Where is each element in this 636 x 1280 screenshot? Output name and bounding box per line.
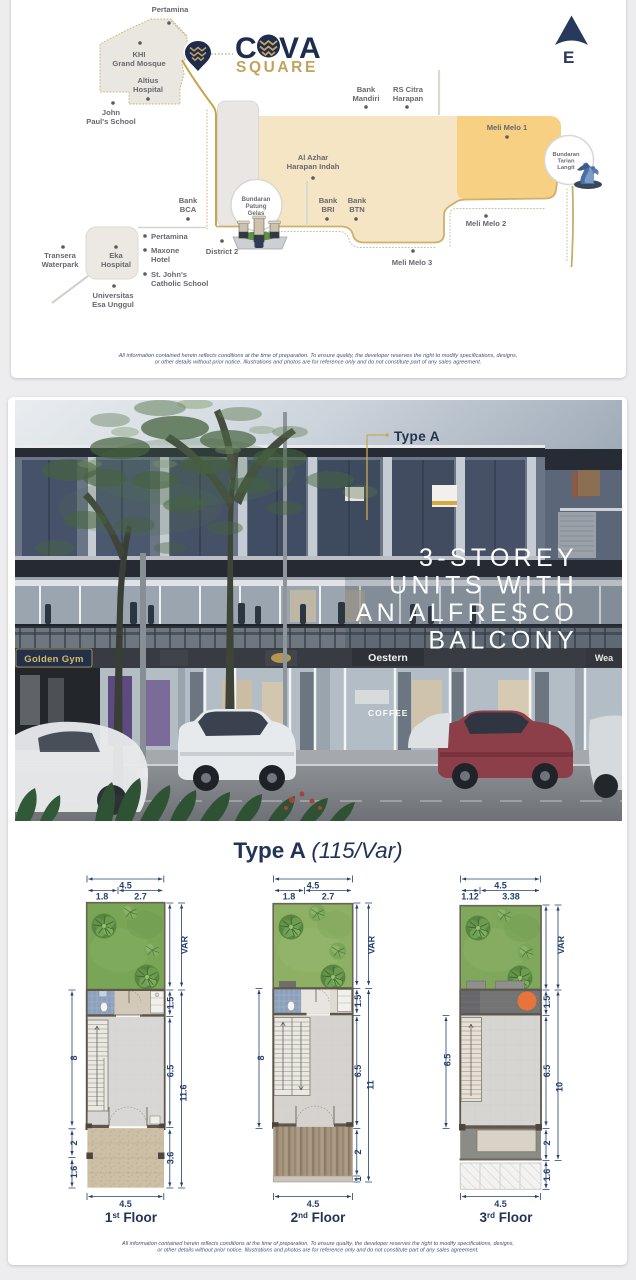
svg-text:1.5: 1.5 bbox=[542, 996, 552, 1009]
svg-text:Oestern: Oestern bbox=[368, 652, 408, 664]
svg-text:VAR: VAR bbox=[556, 935, 566, 954]
svg-text:Golden Gym: Golden Gym bbox=[24, 654, 83, 665]
svg-text:All information contained here: All information contained herein reflect… bbox=[118, 353, 518, 359]
svg-text:4.5: 4.5 bbox=[494, 1199, 507, 1209]
svg-text:Grand Mosque: Grand Mosque bbox=[112, 59, 165, 68]
svg-text:1.6: 1.6 bbox=[542, 1169, 552, 1182]
svg-text:2: 2 bbox=[353, 1149, 363, 1154]
svg-text:Meli Melo 1: Meli Melo 1 bbox=[487, 123, 528, 132]
svg-text:1.12: 1.12 bbox=[461, 892, 479, 902]
svg-text:2nd Floor: 2nd Floor bbox=[291, 1210, 347, 1225]
svg-text:8: 8 bbox=[256, 1055, 266, 1060]
svg-text:Type A: Type A bbox=[394, 429, 440, 444]
svg-text:4.5: 4.5 bbox=[307, 881, 320, 891]
svg-text:Bundaran: Bundaran bbox=[552, 152, 580, 158]
svg-text:VAR: VAR bbox=[180, 935, 190, 954]
svg-text:Tarian: Tarian bbox=[558, 159, 575, 165]
svg-text:Bank: Bank bbox=[348, 196, 367, 205]
svg-text:Esa Unggul: Esa Unggul bbox=[92, 300, 134, 309]
svg-text:or other details without prior: or other details without prior notice. I… bbox=[157, 1248, 478, 1254]
svg-text:2: 2 bbox=[542, 1140, 552, 1145]
svg-text:1.5: 1.5 bbox=[353, 995, 363, 1008]
svg-text:1: 1 bbox=[353, 1176, 363, 1181]
svg-text:RS Citra: RS Citra bbox=[393, 85, 424, 94]
svg-text:4.5: 4.5 bbox=[119, 1199, 132, 1209]
svg-text:Maxone: Maxone bbox=[151, 246, 179, 255]
svg-text:1.8: 1.8 bbox=[283, 892, 296, 902]
svg-text:VAR: VAR bbox=[367, 935, 377, 954]
svg-text:Universitas: Universitas bbox=[93, 291, 134, 300]
svg-text:3rd Floor: 3rd Floor bbox=[479, 1210, 533, 1225]
svg-text:COFFEE: COFFEE bbox=[368, 708, 408, 718]
svg-text:Hospital: Hospital bbox=[101, 260, 131, 269]
svg-text:1.6: 1.6 bbox=[69, 1166, 79, 1179]
svg-text:Bank: Bank bbox=[357, 85, 376, 94]
svg-text:1.5: 1.5 bbox=[166, 997, 176, 1010]
svg-text:or other details without prior: or other details without prior notice. I… bbox=[155, 360, 482, 366]
svg-text:District 2: District 2 bbox=[206, 247, 239, 256]
svg-text:All information contained here: All information contained herein reflect… bbox=[121, 1241, 514, 1247]
svg-text:Meli Melo 3: Meli Melo 3 bbox=[392, 258, 433, 267]
svg-text:Pertamina: Pertamina bbox=[152, 5, 189, 14]
svg-text:St. John's: St. John's bbox=[151, 270, 187, 279]
svg-text:Eka: Eka bbox=[109, 251, 123, 260]
svg-text:4.5: 4.5 bbox=[119, 881, 132, 891]
svg-text:Wea: Wea bbox=[595, 653, 614, 663]
svg-text:8: 8 bbox=[69, 1055, 79, 1060]
svg-text:11.6: 11.6 bbox=[179, 1084, 189, 1101]
svg-text:Meli Melo 2: Meli Melo 2 bbox=[466, 219, 507, 228]
svg-text:BTN: BTN bbox=[349, 205, 365, 214]
svg-text:2.7: 2.7 bbox=[134, 892, 147, 902]
svg-text:6.5: 6.5 bbox=[166, 1065, 176, 1078]
svg-text:Harapan: Harapan bbox=[393, 94, 424, 103]
svg-text:UNITS WITH: UNITS WITH bbox=[389, 572, 578, 600]
svg-text:Al Azhar: Al Azhar bbox=[298, 153, 329, 162]
svg-text:Pertamina: Pertamina bbox=[151, 232, 188, 241]
svg-text:BRI: BRI bbox=[321, 205, 334, 214]
svg-text:4.5: 4.5 bbox=[307, 1199, 320, 1209]
svg-text:Hospital: Hospital bbox=[133, 85, 163, 94]
svg-text:4.5: 4.5 bbox=[494, 881, 507, 891]
svg-text:John: John bbox=[102, 108, 121, 117]
svg-text:Bank: Bank bbox=[179, 196, 198, 205]
svg-text:BALCONY: BALCONY bbox=[428, 627, 578, 655]
svg-text:Transera: Transera bbox=[44, 251, 76, 260]
svg-text:2: 2 bbox=[69, 1140, 79, 1145]
svg-text:BCA: BCA bbox=[180, 205, 197, 214]
svg-text:Type A (115/Var): Type A (115/Var) bbox=[233, 838, 402, 863]
svg-text:1st Floor: 1st Floor bbox=[105, 1210, 158, 1225]
svg-text:Patung: Patung bbox=[246, 203, 267, 210]
svg-text:KHI: KHI bbox=[132, 50, 145, 59]
svg-text:Mandiri: Mandiri bbox=[352, 94, 379, 103]
svg-text:11: 11 bbox=[366, 1080, 376, 1090]
svg-text:Catholic School: Catholic School bbox=[151, 279, 208, 288]
svg-text:Paul's School: Paul's School bbox=[86, 117, 136, 126]
svg-text:10: 10 bbox=[555, 1082, 565, 1092]
svg-text:AN ALFRESCO: AN ALFRESCO bbox=[356, 599, 578, 627]
svg-text:3-STOREY: 3-STOREY bbox=[419, 544, 578, 572]
svg-text:6.5: 6.5 bbox=[542, 1065, 552, 1078]
svg-text:1.8: 1.8 bbox=[96, 892, 109, 902]
svg-text:SQUARE: SQUARE bbox=[236, 59, 318, 76]
svg-text:3.6: 3.6 bbox=[166, 1152, 176, 1165]
svg-text:E: E bbox=[563, 48, 574, 67]
svg-text:Altius: Altius bbox=[137, 76, 158, 85]
svg-text:Bank: Bank bbox=[319, 196, 338, 205]
svg-text:Langit: Langit bbox=[557, 165, 574, 171]
svg-text:Waterpark: Waterpark bbox=[42, 260, 80, 269]
svg-text:Bundaran: Bundaran bbox=[242, 196, 271, 203]
svg-text:Hotel: Hotel bbox=[151, 255, 170, 264]
svg-text:6.5: 6.5 bbox=[353, 1065, 363, 1078]
svg-text:2.7: 2.7 bbox=[322, 892, 335, 902]
svg-text:Harapan Indah: Harapan Indah bbox=[287, 162, 340, 171]
svg-text:6.5: 6.5 bbox=[443, 1054, 453, 1067]
svg-text:3.38: 3.38 bbox=[502, 892, 520, 902]
